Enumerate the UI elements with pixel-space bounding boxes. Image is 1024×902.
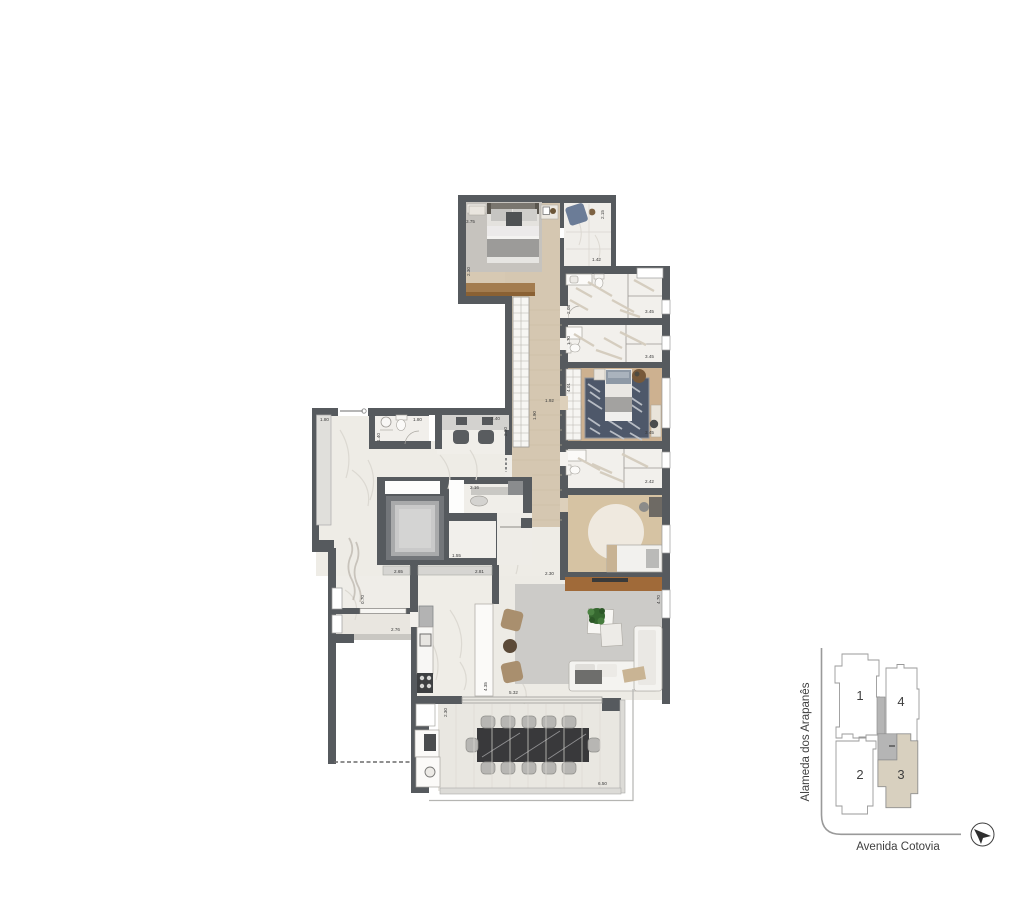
svg-text:2.30: 2.30	[466, 267, 471, 276]
svg-text:3.45: 3.45	[645, 309, 654, 314]
svg-text:Alameda dos Arapanês: Alameda dos Arapanês	[800, 682, 812, 801]
svg-text:2.16: 2.16	[470, 485, 479, 490]
svg-text:2.15: 2.15	[600, 210, 605, 219]
svg-text:2.65: 2.65	[394, 569, 403, 574]
svg-text:1.80: 1.80	[413, 417, 422, 422]
svg-text:3.45: 3.45	[645, 430, 654, 435]
svg-text:4: 4	[897, 694, 904, 709]
svg-text:2.30: 2.30	[503, 427, 508, 436]
svg-text:4.01: 4.01	[566, 383, 571, 392]
svg-text:Avenida Cotovia: Avenida Cotovia	[856, 841, 940, 853]
svg-text:5.32: 5.32	[509, 690, 518, 695]
svg-text:3.45: 3.45	[645, 354, 654, 359]
svg-text:2.08: 2.08	[566, 305, 571, 314]
svg-text:2.40: 2.40	[491, 416, 500, 421]
svg-text:1.92: 1.92	[545, 398, 554, 403]
svg-text:2.81: 2.81	[475, 569, 484, 574]
svg-text:1: 1	[856, 688, 863, 703]
svg-text:2.42: 2.42	[645, 479, 654, 484]
svg-text:6.50: 6.50	[598, 781, 607, 786]
svg-text:0.70: 0.70	[360, 595, 365, 604]
svg-text:4.70: 4.70	[656, 595, 661, 604]
svg-text:1.55: 1.55	[452, 553, 461, 558]
svg-text:2.76: 2.76	[391, 627, 400, 632]
svg-text:4.35: 4.35	[483, 682, 488, 691]
svg-text:1.70: 1.70	[566, 336, 571, 345]
svg-text:3.75: 3.75	[466, 219, 475, 224]
svg-text:1.40: 1.40	[376, 433, 381, 442]
svg-text:1.42: 1.42	[592, 257, 601, 262]
svg-text:2.30: 2.30	[545, 571, 554, 576]
svg-text:2: 2	[856, 767, 863, 782]
svg-text:3: 3	[897, 767, 904, 782]
svg-text:2.30: 2.30	[443, 708, 448, 717]
svg-text:1.80: 1.80	[320, 417, 329, 422]
svg-text:1.90: 1.90	[532, 411, 537, 420]
